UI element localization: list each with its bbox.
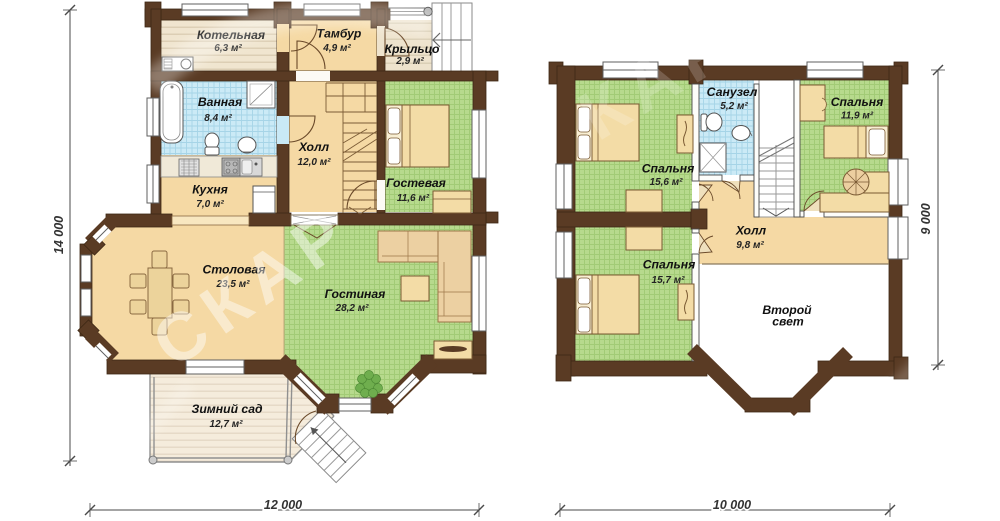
svg-text:15,6 м²: 15,6 м² (650, 177, 684, 188)
svg-text:Тамбур: Тамбур (317, 27, 362, 41)
svg-text:9 000: 9 000 (919, 203, 933, 234)
svg-text:Спальня: Спальня (831, 95, 884, 109)
svg-text:свет: свет (772, 315, 804, 329)
svg-text:Холл: Холл (735, 224, 767, 238)
svg-text:15,7 м²: 15,7 м² (652, 275, 686, 286)
svg-text:12,7 м²: 12,7 м² (210, 419, 244, 430)
svg-text:5,2 м²: 5,2 м² (720, 101, 748, 112)
svg-text:10 000: 10 000 (713, 498, 751, 512)
svg-text:11,6 м²: 11,6 м² (397, 193, 430, 204)
svg-text:8,4 м²: 8,4 м² (204, 113, 232, 124)
svg-text:Гостиная: Гостиная (325, 287, 386, 301)
svg-text:4,9 м²: 4,9 м² (322, 43, 351, 54)
svg-text:14 000: 14 000 (52, 216, 66, 254)
svg-text:11,9 м²: 11,9 м² (841, 111, 874, 122)
svg-text:7,0 м²: 7,0 м² (196, 199, 224, 210)
svg-text:Холл: Холл (298, 140, 330, 154)
svg-text:9,8 м²: 9,8 м² (736, 240, 764, 251)
svg-text:2,9 м²: 2,9 м² (395, 56, 424, 67)
svg-text:28,2 м²: 28,2 м² (335, 303, 370, 314)
svg-text:Гостевая: Гостевая (386, 176, 446, 190)
svg-text:12 000: 12 000 (264, 498, 302, 512)
svg-text:Крыльцо: Крыльцо (384, 42, 440, 56)
svg-text:Спальня: Спальня (642, 162, 695, 176)
svg-text:Зимний сад: Зимний сад (191, 402, 262, 416)
svg-text:Кухня: Кухня (192, 183, 228, 197)
svg-text:12,0 м²: 12,0 м² (298, 157, 332, 168)
svg-text:Спальня: Спальня (643, 258, 696, 272)
svg-text:Ванная: Ванная (198, 95, 242, 109)
